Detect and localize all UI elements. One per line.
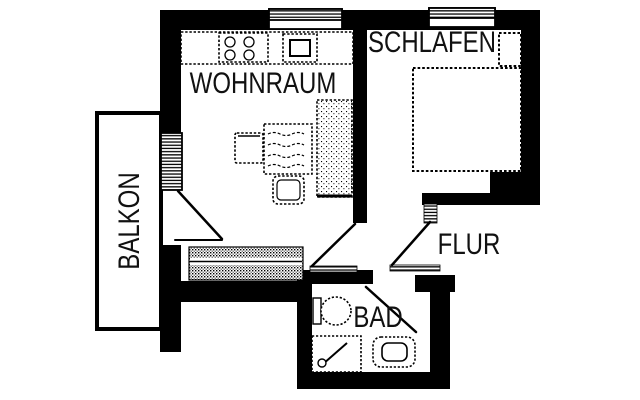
nightstand: [499, 33, 521, 66]
door-thresholds: [310, 204, 440, 272]
double-bed: [413, 68, 521, 171]
threshold-wohnraum-flur: [310, 266, 357, 272]
coffee-table-inner: [277, 180, 300, 200]
floor-plan: WOHNRAUM SCHLAFEN FLUR BAD BALKON: [0, 0, 640, 400]
armchair: [235, 133, 263, 163]
wohnraum-label: WOHNRAUM: [190, 67, 337, 101]
threshold-flur-entry: [390, 265, 440, 271]
floor-plan-drawing: [0, 0, 640, 400]
toilet-bowl: [321, 297, 351, 325]
schlafen-window-hatch: [429, 8, 495, 18]
living-furniture: [235, 100, 352, 204]
washbasin-inner: [382, 343, 407, 361]
wardrobe: [317, 100, 352, 197]
shower-drain: [318, 359, 326, 367]
wall-left-upper: [160, 10, 181, 135]
balcony-door-leaf: [178, 191, 222, 239]
bad-label: BAD: [353, 301, 402, 335]
toilet-tank: [313, 298, 321, 324]
schlafen-door-jamb: [424, 204, 437, 223]
balkon-label: BALKON: [113, 172, 147, 269]
wall-bath-right-block: [415, 275, 455, 292]
wall-bath-bottom: [297, 372, 450, 389]
schlafen-label: SCHLAFEN: [368, 26, 496, 60]
kitchen-sink-basin: [290, 40, 310, 56]
radiator: [189, 247, 303, 280]
kitchen-window-hatch: [269, 9, 342, 20]
wall-wohnraum-schlafen: [353, 30, 367, 223]
schlafen-door-leaf: [392, 222, 430, 265]
wall-wohnraum-bottom: [160, 281, 303, 302]
balcony-window: [161, 133, 182, 190]
flur-label: FLUR: [438, 228, 501, 262]
kitchen: [181, 32, 353, 64]
wall-schlafen-flur-block: [490, 172, 540, 205]
wall-bath-right: [430, 275, 450, 389]
wohnraum-door-leaf: [312, 224, 355, 266]
